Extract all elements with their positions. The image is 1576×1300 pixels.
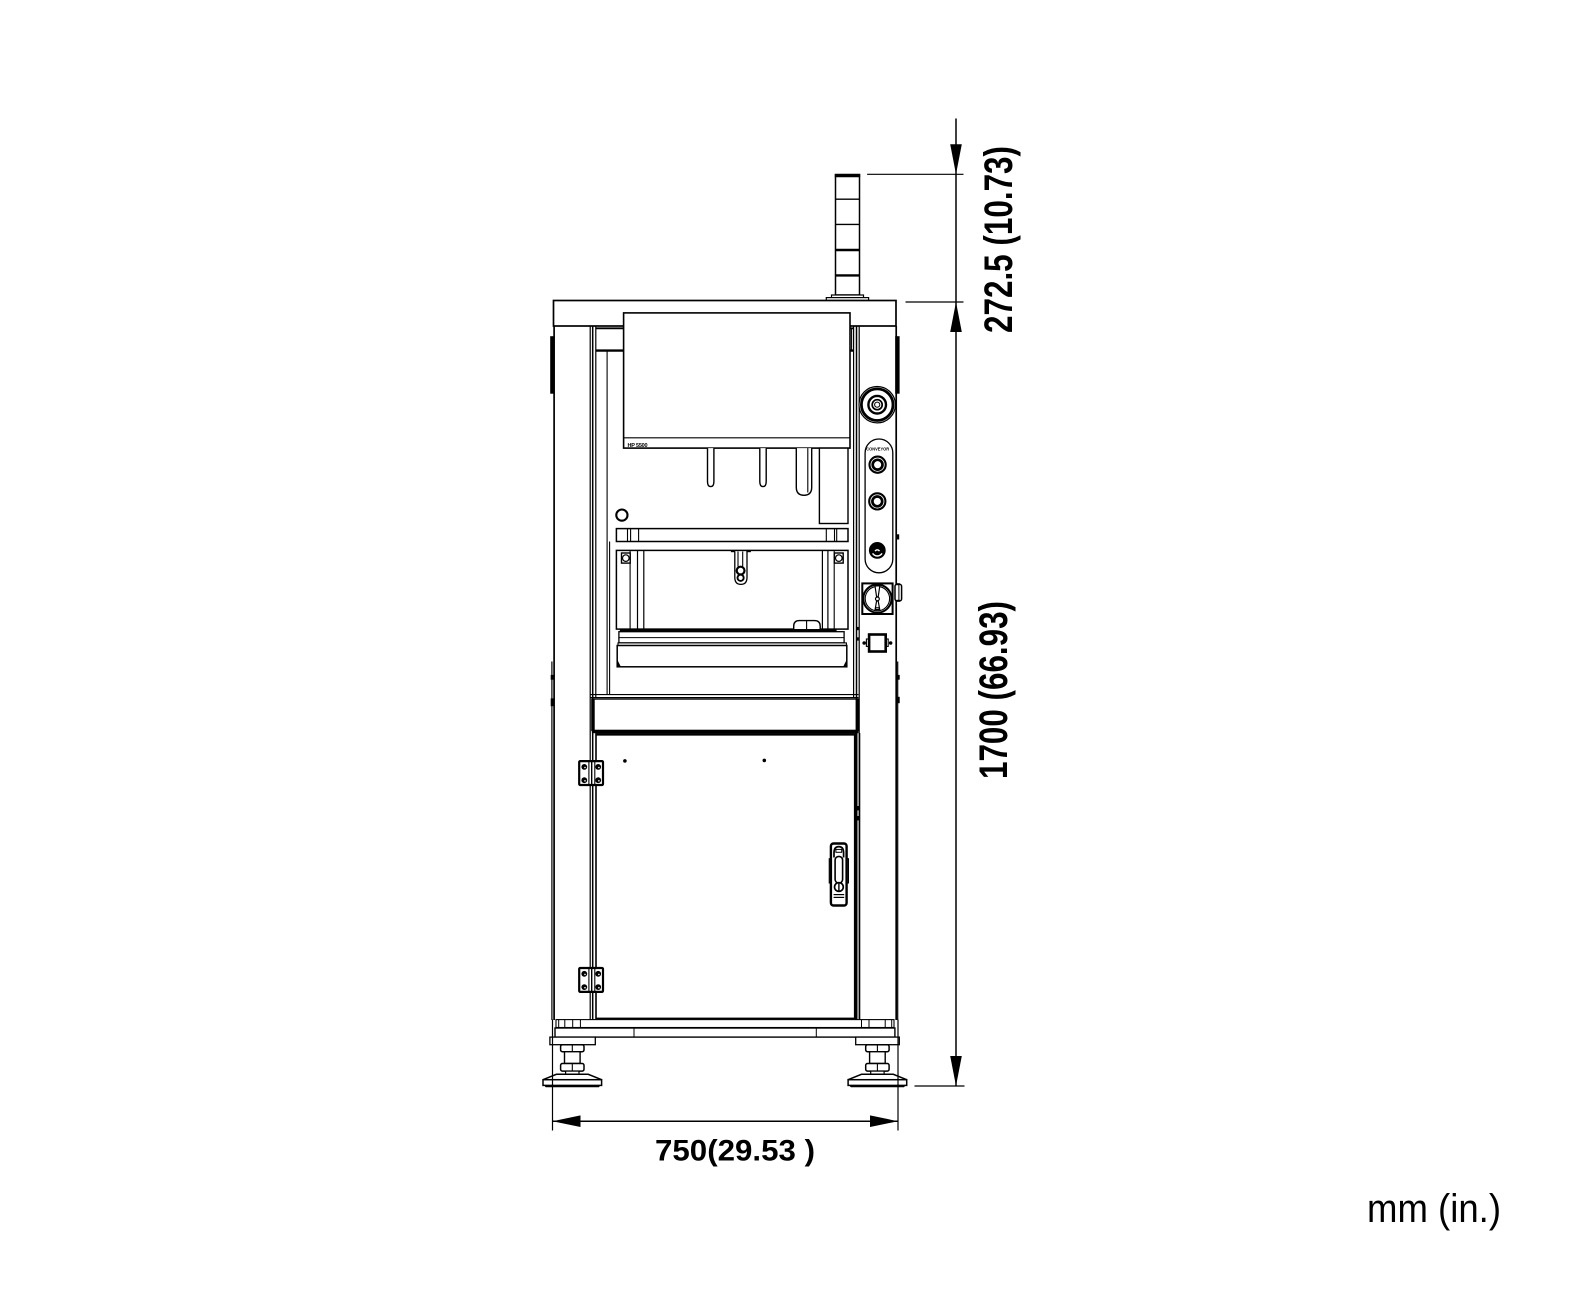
svg-text:HP 5500: HP 5500 <box>628 443 648 449</box>
svg-text:mm (in.): mm (in.) <box>1367 1187 1501 1231</box>
svg-text:CONVEYOR: CONVEYOR <box>866 446 890 451</box>
svg-text:750(29.53 ): 750(29.53 ) <box>655 1135 815 1168</box>
svg-text:272.5 (10.73): 272.5 (10.73) <box>977 146 1021 333</box>
svg-text:1700 (66.93): 1700 (66.93) <box>972 601 1016 779</box>
